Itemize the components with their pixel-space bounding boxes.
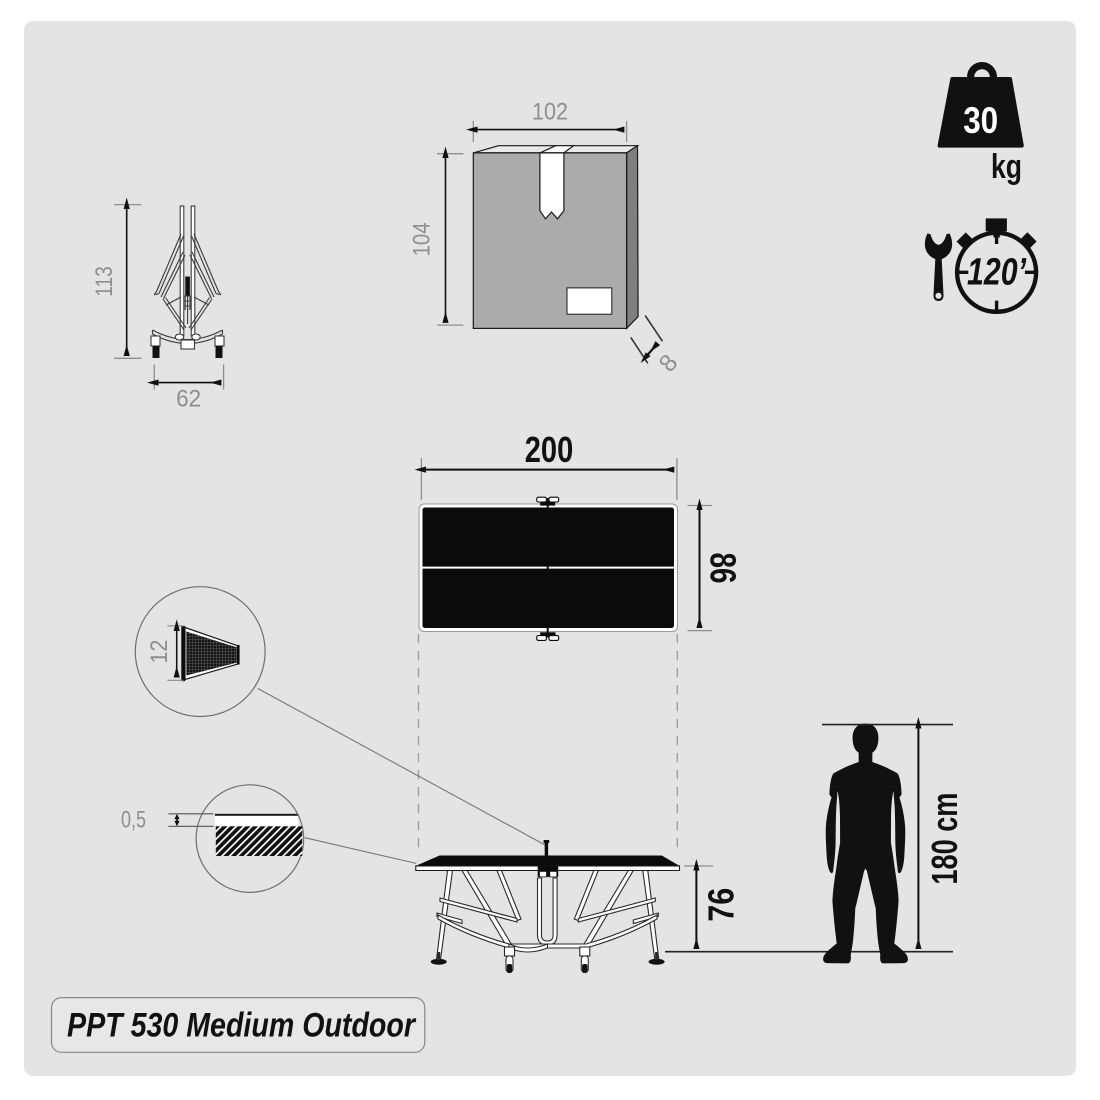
svg-text:kg: kg (991, 148, 1022, 186)
svg-text:30: 30 (963, 99, 998, 141)
svg-text:180 cm: 180 cm (924, 793, 965, 885)
svg-text:200: 200 (525, 429, 574, 470)
svg-text:120’: 120’ (967, 252, 1026, 294)
svg-text:PPT 530 Medium Outdoor: PPT 530 Medium Outdoor (67, 1007, 416, 1045)
svg-text:104: 104 (408, 222, 435, 256)
svg-text:113: 113 (91, 266, 118, 297)
svg-text:0,5: 0,5 (121, 807, 146, 834)
svg-text:102: 102 (532, 99, 568, 126)
svg-text:86: 86 (702, 553, 743, 584)
svg-text:12: 12 (146, 640, 173, 664)
svg-text:76: 76 (701, 888, 742, 922)
svg-text:62: 62 (176, 386, 201, 413)
